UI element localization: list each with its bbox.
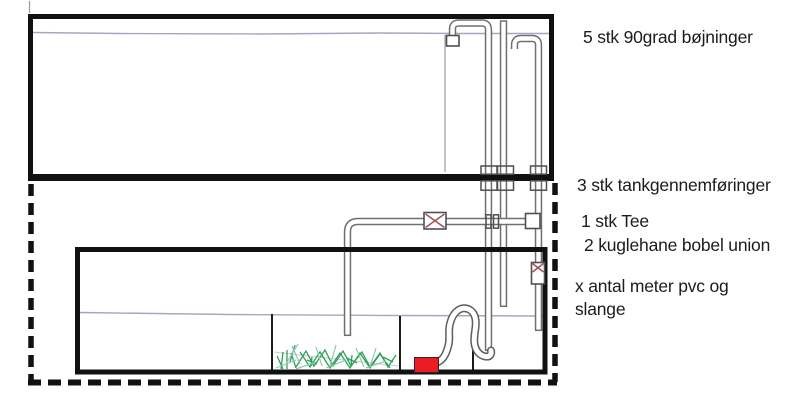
plants-scribble xyxy=(276,344,396,369)
upper-tank xyxy=(28,1,554,178)
plumbing-diagram xyxy=(0,0,800,403)
annotation-bends: 5 stk 90grad bøjninger xyxy=(583,27,753,47)
annotation-pvc-line1: x antal meter pvc og xyxy=(575,276,729,296)
tee-fitting xyxy=(526,214,541,229)
annotation-valves: 2 kuglehane bobel union xyxy=(584,235,770,255)
ball-valve-horizontal xyxy=(424,213,446,230)
sump-plumbing-sketch: 5 stk 90grad bøjninger 3 stk tankgennemf… xyxy=(0,0,800,403)
pump xyxy=(415,358,439,373)
annotation-bulkheads: 3 stk tankgennemføringer xyxy=(577,175,771,195)
upper-tank-waterline xyxy=(33,33,549,35)
ball-valve-vertical xyxy=(532,263,545,285)
elbow-base-fitting xyxy=(447,36,460,47)
annotation-tee: 1 stk Tee xyxy=(581,211,649,231)
standpipe xyxy=(500,21,507,306)
annotation-pvc-line2: slange xyxy=(575,299,625,319)
return-pipe-with-elbows xyxy=(453,23,493,350)
drain-pipe-with-elbows xyxy=(515,39,543,331)
